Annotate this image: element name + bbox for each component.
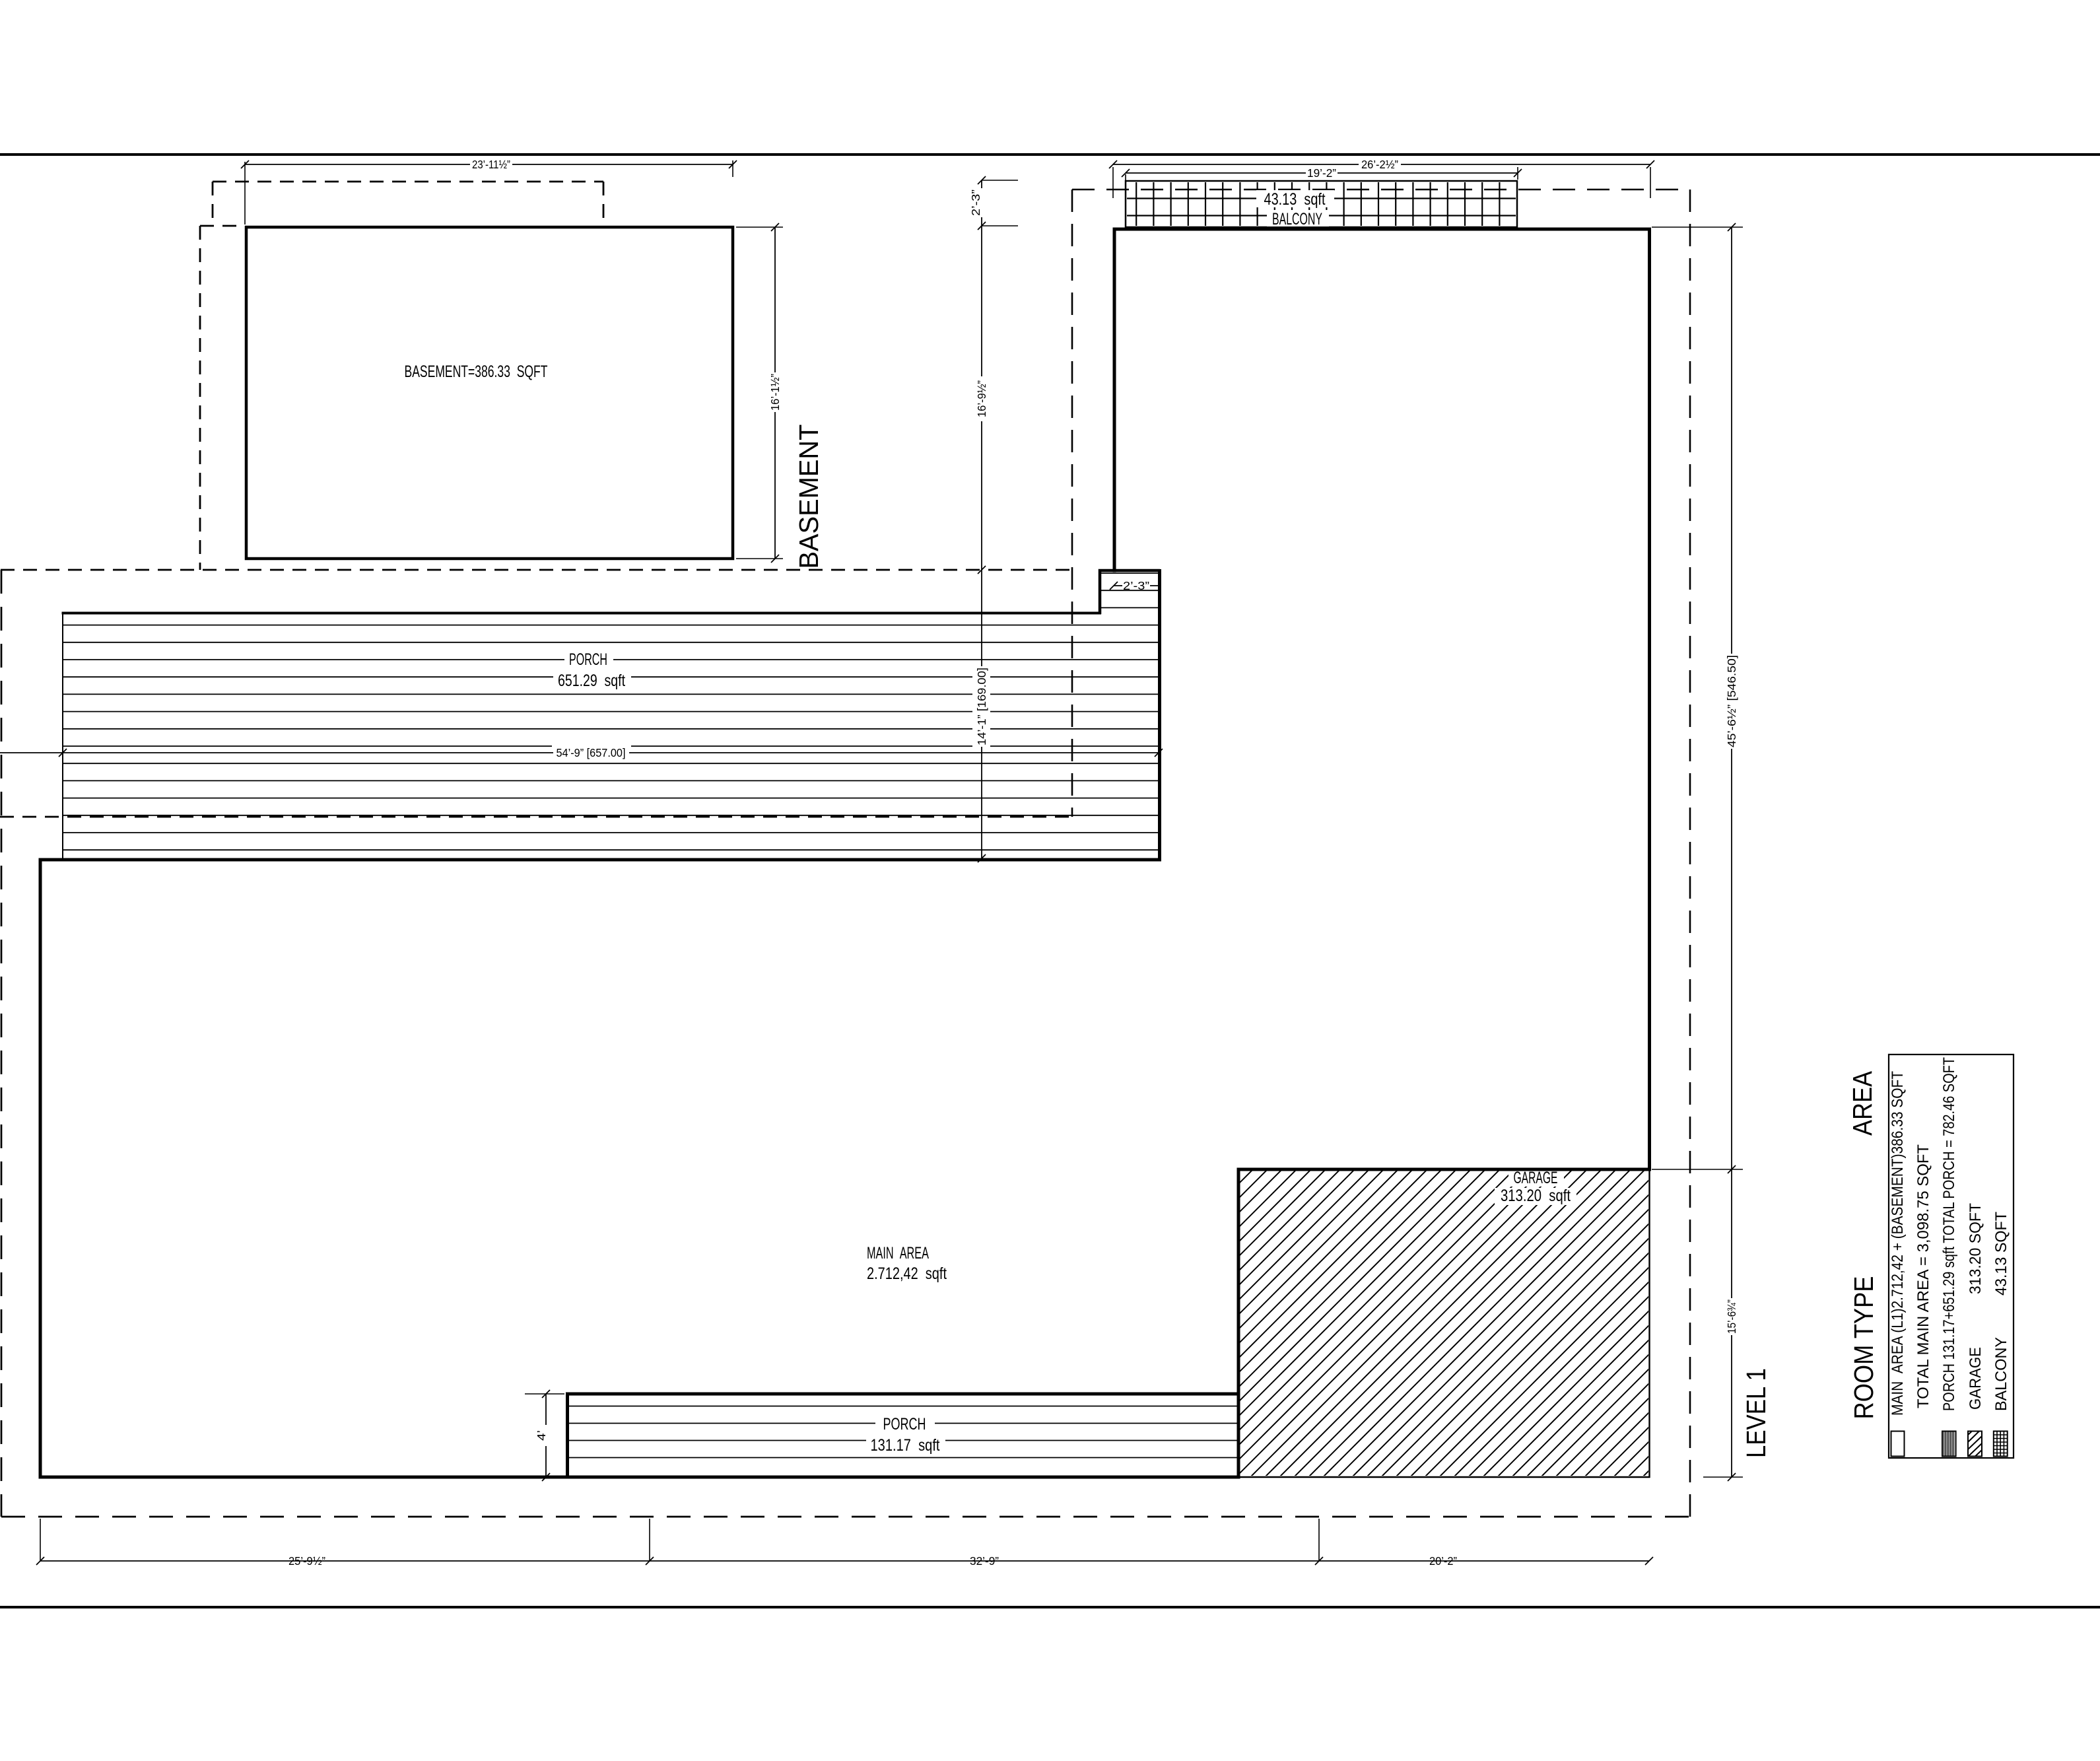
svg-text:PORCH: PORCH (883, 1415, 926, 1433)
svg-text:54’-9” [657.00]: 54’-9” [657.00] (557, 746, 626, 759)
svg-text:16’-9½”: 16’-9½” (975, 380, 988, 417)
svg-text:651.29 sqft: 651.29 sqft (558, 672, 625, 690)
svg-text:MAIN AREA (L1)2.712,42 + (BAS: MAIN AREA (L1)2.712,42 + (BASEMENT)386.3… (1889, 1071, 1907, 1416)
svg-text:45’-6½” [546.50]: 45’-6½” [546.50] (1725, 655, 1738, 747)
svg-text:14’-1” [169.00]: 14’-1” [169.00] (975, 668, 988, 745)
svg-text:PORCH 131.17+651.29 sqft TOTAL: PORCH 131.17+651.29 sqft TOTAL PORCH = 7… (1940, 1057, 1958, 1411)
svg-text:BALCONY: BALCONY (1272, 210, 1322, 228)
svg-text:BASEMENT=386.33 SQFT: BASEMENT=386.33 SQFT (405, 363, 548, 381)
svg-text:MAIN AREA: MAIN AREA (867, 1244, 929, 1262)
svg-text:26’-2½”: 26’-2½” (1361, 158, 1398, 171)
svg-text:43.13 SQFT: 43.13 SQFT (1992, 1212, 2010, 1295)
svg-text:GARAGE: GARAGE (1967, 1347, 1984, 1410)
svg-text:2.712,42 sqft: 2.712,42 sqft (867, 1264, 947, 1283)
svg-text:32’-9”: 32’-9” (970, 1554, 999, 1568)
svg-text:20’-2”: 20’-2” (1429, 1554, 1457, 1568)
svg-text:TOTAL MAIN AREA = 3,098.75 SQF: TOTAL MAIN AREA = 3,098.75 SQFT (1914, 1144, 1932, 1408)
svg-text:BASEMENT: BASEMENT (794, 425, 824, 569)
svg-text:16’-1½”: 16’-1½” (768, 374, 782, 411)
svg-text:ROOM TYPE: ROOM TYPE (1848, 1276, 1879, 1420)
svg-text:4’: 4’ (535, 1430, 548, 1441)
svg-text:BALCONY: BALCONY (1992, 1337, 2010, 1411)
svg-text:GARAGE: GARAGE (1514, 1169, 1558, 1187)
svg-text:AREA: AREA (1847, 1070, 1878, 1136)
svg-text:23’-11½”: 23’-11½” (472, 158, 510, 171)
svg-text:2’-3”: 2’-3” (969, 190, 982, 216)
svg-text:15’-6¾”: 15’-6¾” (1725, 1299, 1738, 1334)
svg-text:313.20 SQFT: 313.20 SQFT (1967, 1203, 1984, 1294)
svg-text:LEVEL 1: LEVEL 1 (1741, 1368, 1771, 1458)
svg-text:313.20 sqft: 313.20 sqft (1501, 1187, 1571, 1205)
svg-text:PORCH: PORCH (569, 650, 607, 669)
svg-text:43.13 sqft: 43.13 sqft (1264, 190, 1326, 209)
svg-text:2’-3”: 2’-3” (1123, 579, 1149, 592)
svg-text:19’-2”: 19’-2” (1307, 166, 1336, 180)
svg-text:25’-9½”: 25’-9½” (288, 1554, 325, 1568)
svg-text:131.17 sqft: 131.17 sqft (871, 1436, 940, 1455)
